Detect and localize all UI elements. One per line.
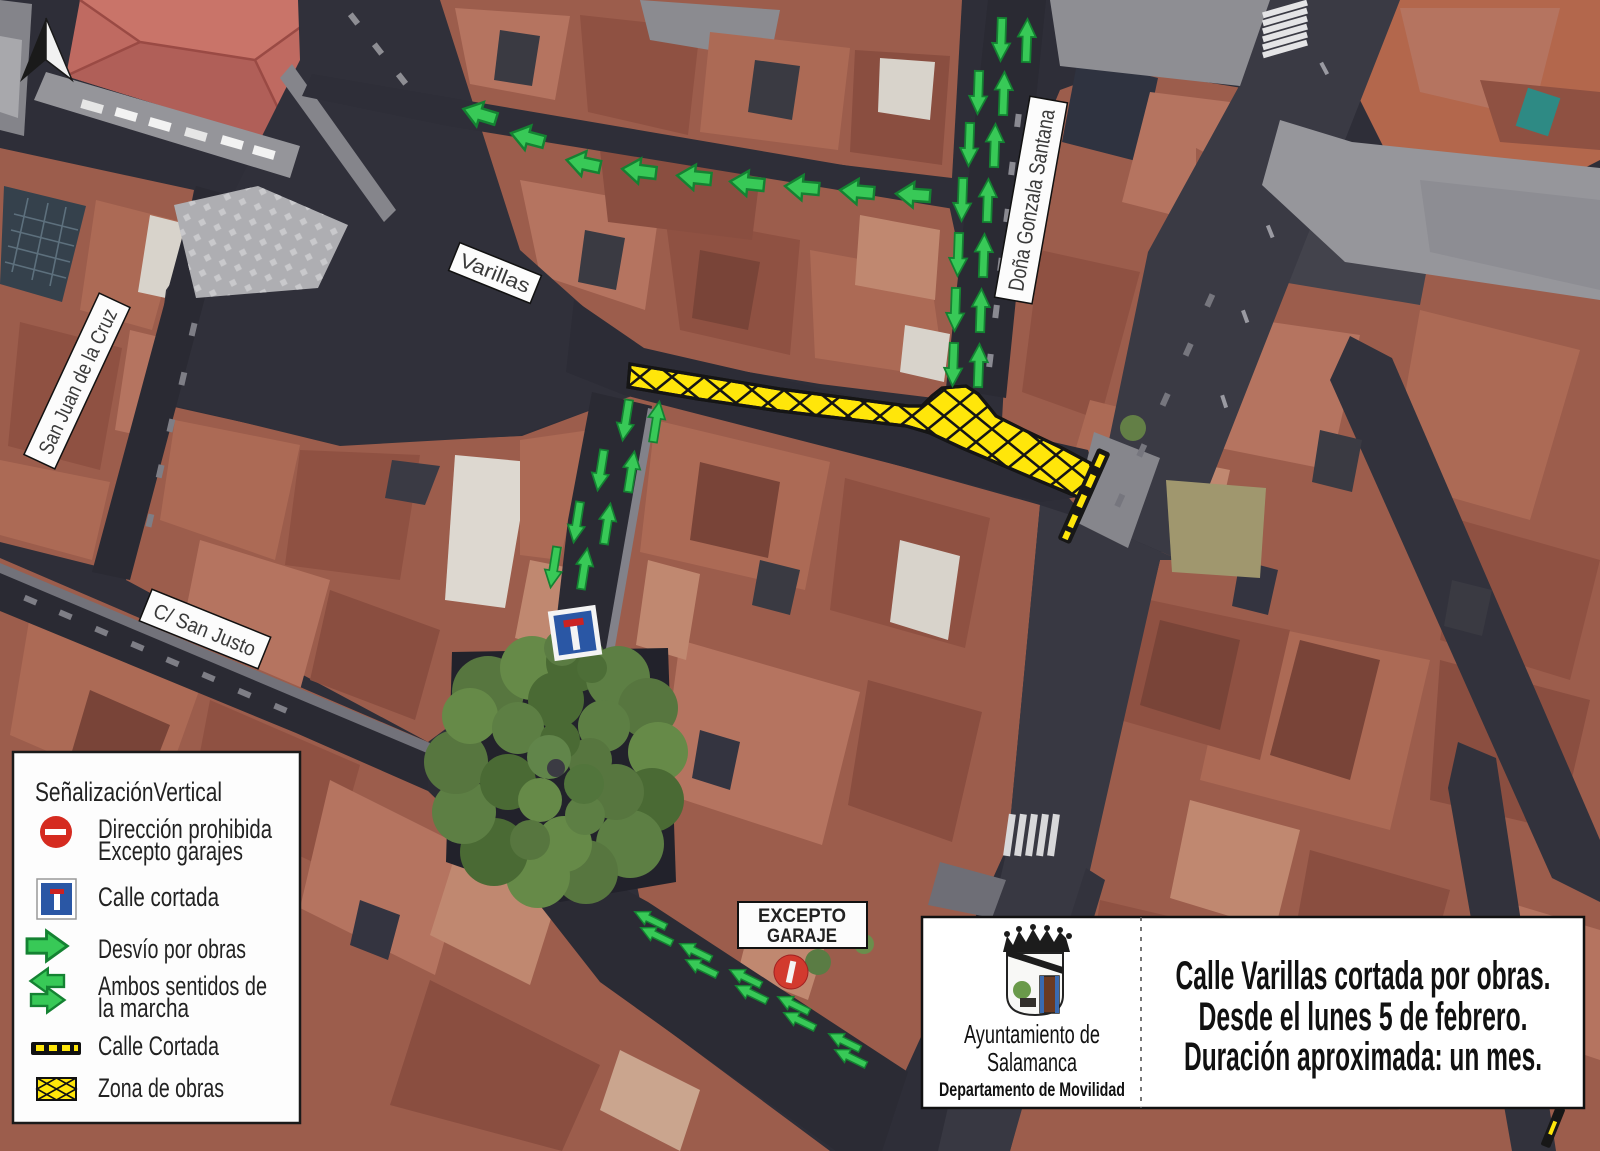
- svg-text:la marcha: la marcha: [98, 993, 190, 1023]
- svg-text:Zona de obras: Zona de obras: [98, 1073, 224, 1103]
- svg-text:Departamento de Movilidad: Departamento de Movilidad: [939, 1080, 1125, 1101]
- svg-text:Calle cortada: Calle cortada: [98, 882, 220, 912]
- svg-text:Salamanca: Salamanca: [987, 1047, 1077, 1077]
- svg-text:Calle Varillas cortada por obr: Calle Varillas cortada por obras.: [1176, 954, 1551, 998]
- svg-text:Calle Cortada: Calle Cortada: [98, 1031, 220, 1061]
- svg-text:GARAJE: GARAJE: [767, 926, 837, 947]
- svg-text:Duración aproximada: un mes.: Duración aproximada: un mes.: [1184, 1035, 1542, 1079]
- svg-text:Ayuntamiento de: Ayuntamiento de: [964, 1019, 1100, 1049]
- svg-text:SeñalizaciónVertical: SeñalizaciónVertical: [35, 777, 222, 807]
- svg-text:Desvío por obras: Desvío por obras: [98, 934, 246, 964]
- svg-text:EXCEPTO: EXCEPTO: [758, 906, 846, 927]
- svg-text:Desde el lunes 5 de febrero.: Desde el lunes 5 de febrero.: [1199, 995, 1528, 1039]
- svg-text:Excepto garajes: Excepto garajes: [98, 836, 243, 866]
